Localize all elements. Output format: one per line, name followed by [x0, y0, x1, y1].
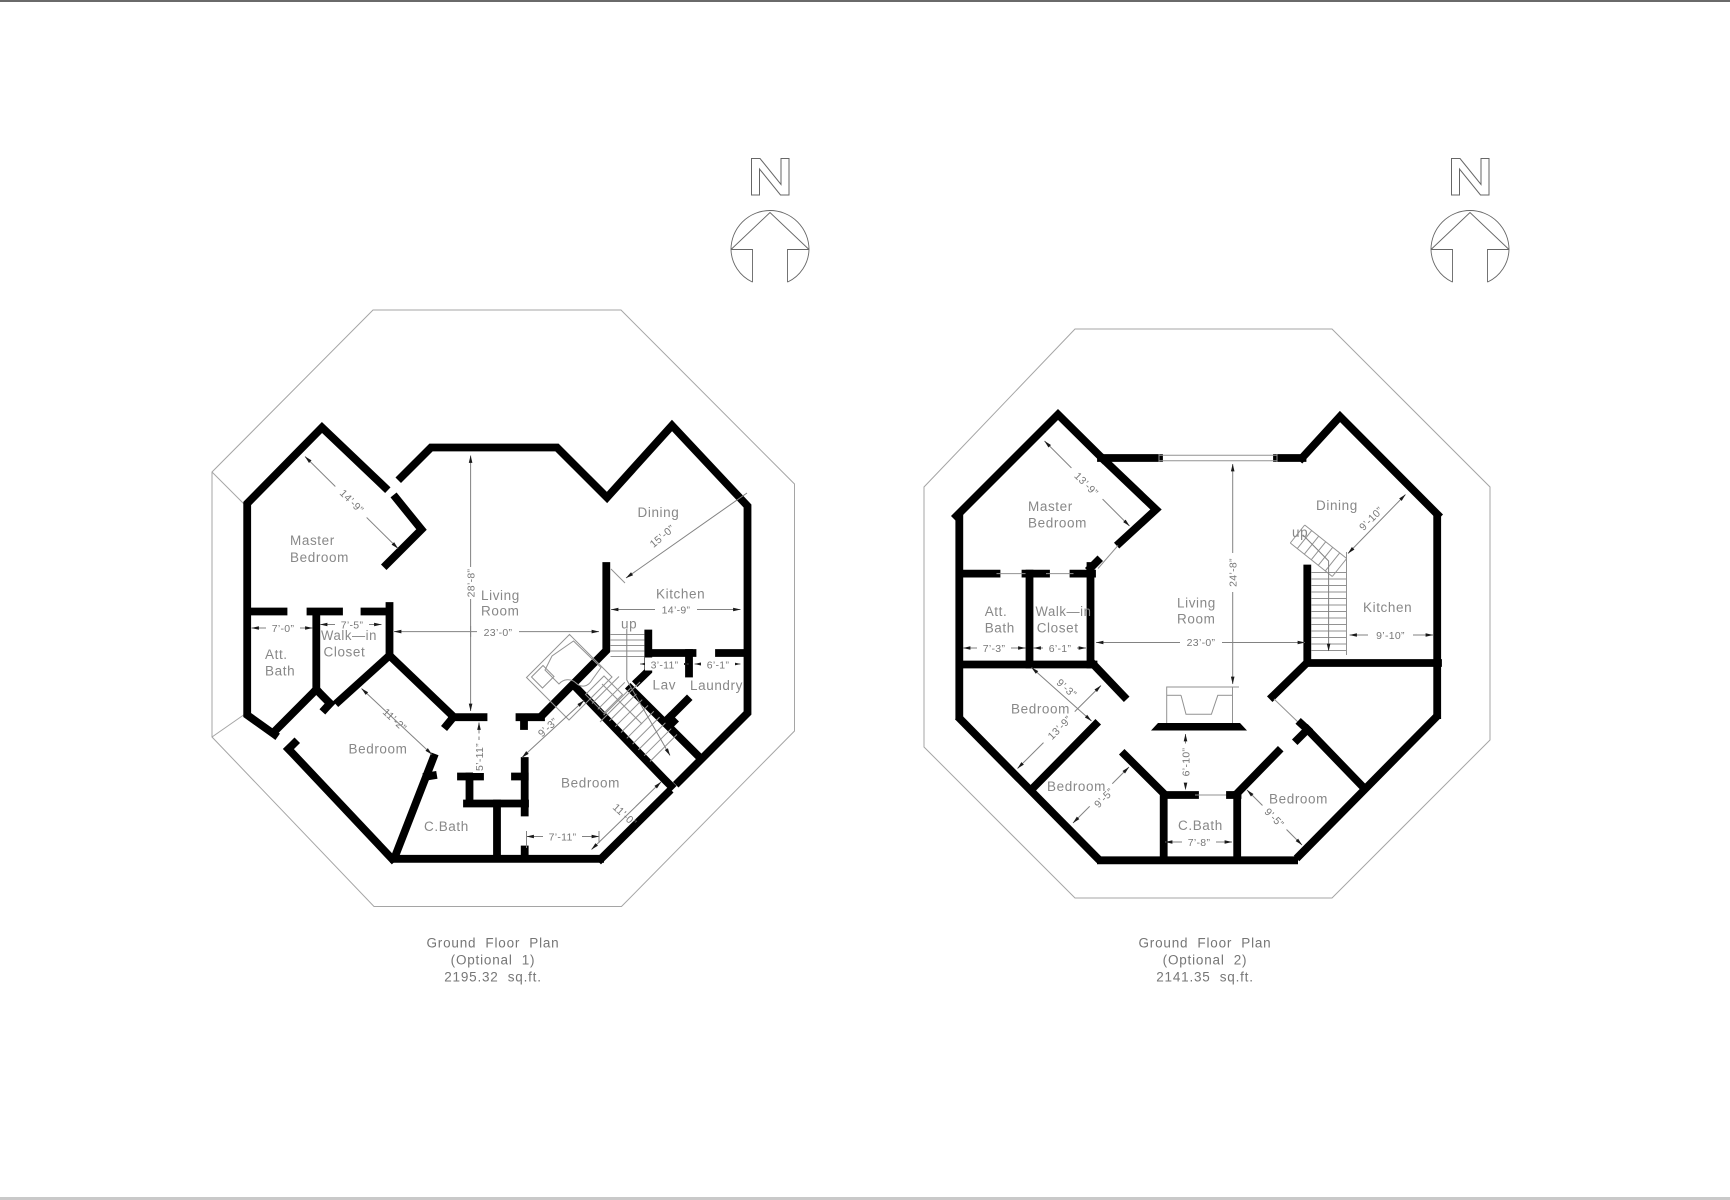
- svg-text:Walk—in: Walk—in: [321, 628, 377, 643]
- svg-text:Master: Master: [290, 533, 335, 548]
- svg-text:(Optional 2): (Optional 2): [1163, 953, 1248, 968]
- svg-text:Att.: Att.: [985, 604, 1008, 619]
- svg-text:Laundry: Laundry: [690, 678, 743, 693]
- svg-text:5’-11”: 5’-11”: [474, 743, 486, 771]
- svg-text:Master: Master: [1028, 499, 1073, 514]
- svg-text:7’-0”: 7’-0”: [272, 623, 295, 635]
- svg-text:2195.32 sq.ft.: 2195.32 sq.ft.: [444, 970, 542, 985]
- svg-text:Closet: Closet: [324, 645, 366, 660]
- svg-text:28’-8”: 28’-8”: [466, 568, 478, 597]
- svg-text:Living: Living: [1177, 596, 1216, 611]
- svg-text:6’-1”: 6’-1”: [1049, 643, 1072, 655]
- svg-text:Att.: Att.: [265, 647, 288, 662]
- svg-text:6’-10”: 6’-10”: [1181, 747, 1193, 776]
- svg-text:C.Bath: C.Bath: [424, 819, 469, 834]
- svg-text:Bedroom: Bedroom: [1028, 516, 1087, 531]
- svg-text:6’-1”: 6’-1”: [707, 660, 730, 672]
- svg-text:Room: Room: [481, 604, 519, 619]
- svg-text:Closet: Closet: [1037, 621, 1079, 636]
- svg-text:Walk—in: Walk—in: [1036, 604, 1092, 619]
- svg-text:up: up: [1292, 525, 1308, 540]
- svg-text:Kitchen: Kitchen: [1363, 600, 1412, 615]
- svg-text:Kitchen: Kitchen: [656, 587, 705, 602]
- svg-text:Room: Room: [1177, 612, 1215, 627]
- svg-text:3’-11”: 3’-11”: [651, 660, 679, 672]
- svg-text:23’-0”: 23’-0”: [484, 627, 513, 639]
- svg-text:7’-11”: 7’-11”: [549, 832, 577, 844]
- svg-text:Lav: Lav: [653, 678, 677, 693]
- svg-text:Ground Floor Plan: Ground Floor Plan: [1138, 936, 1271, 951]
- svg-text:7’-8”: 7’-8”: [1188, 837, 1211, 849]
- svg-text:9’-10”: 9’-10”: [1376, 630, 1405, 642]
- svg-text:C.Bath: C.Bath: [1178, 818, 1223, 833]
- svg-text:Bedroom: Bedroom: [349, 742, 408, 757]
- svg-text:Bedroom: Bedroom: [1047, 779, 1106, 794]
- svg-text:Dining: Dining: [1316, 498, 1358, 513]
- svg-text:Bedroom: Bedroom: [290, 550, 349, 565]
- svg-text:24’-8”: 24’-8”: [1228, 558, 1240, 587]
- svg-text:7’-3”: 7’-3”: [983, 643, 1006, 655]
- svg-text:2141.35 sq.ft.: 2141.35 sq.ft.: [1156, 970, 1254, 985]
- svg-text:Bath: Bath: [985, 621, 1015, 636]
- svg-text:Ground Floor Plan: Ground Floor Plan: [426, 936, 559, 951]
- svg-text:23’-0”: 23’-0”: [1187, 637, 1216, 649]
- svg-text:Living: Living: [481, 588, 520, 603]
- svg-text:Bedroom: Bedroom: [1011, 702, 1070, 717]
- svg-text:(Optional 1): (Optional 1): [451, 953, 536, 968]
- svg-text:Bath: Bath: [265, 664, 295, 679]
- svg-text:up: up: [621, 617, 637, 632]
- svg-text:Dining: Dining: [638, 505, 680, 520]
- svg-text:14’-9”: 14’-9”: [662, 605, 691, 617]
- svg-text:Bedroom: Bedroom: [561, 776, 620, 791]
- svg-text:Bedroom: Bedroom: [1269, 792, 1328, 807]
